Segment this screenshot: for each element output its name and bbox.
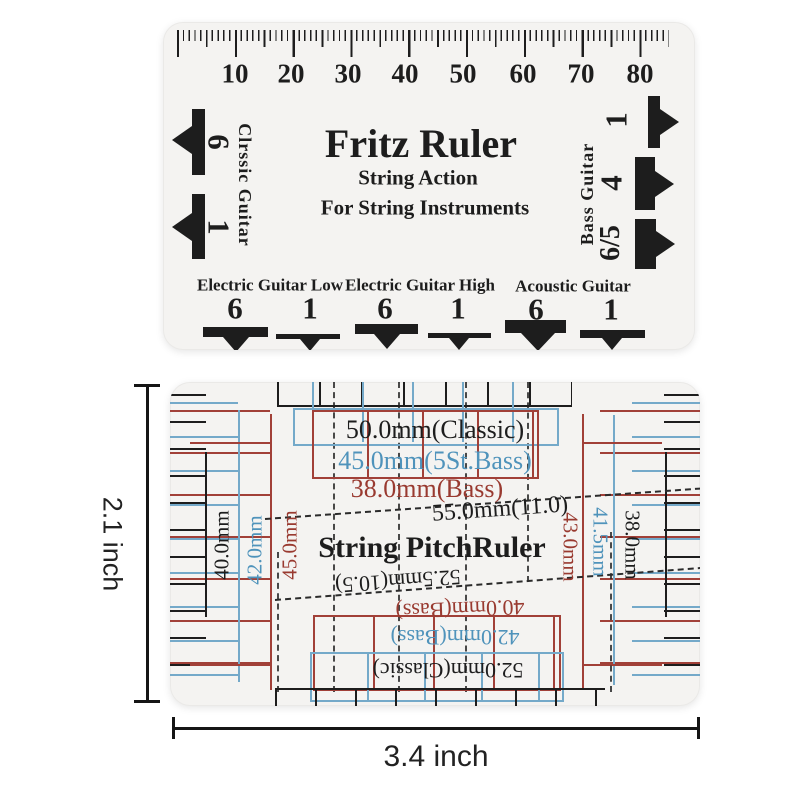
spacing-label-42-bass: 42.0mm(Bass) (391, 626, 520, 648)
scale-number: 30 (335, 61, 362, 88)
bass-string-number: 1 (601, 112, 632, 128)
guide-seg-red (190, 442, 270, 444)
marker-bar (203, 327, 268, 337)
bass-marker-arrow-1-icon (660, 109, 679, 135)
spacing-label-5st-bass: 45.0mm(5St.Bass) (338, 448, 532, 474)
marker-arrow-icon (449, 338, 469, 350)
bass-marker-arrow-6-5-icon (656, 231, 675, 257)
marker-arrow-icon (374, 334, 400, 349)
bass-marker-bar-1 (648, 96, 660, 148)
classic-marker-arrow-6-icon (172, 126, 192, 154)
pitch-ruler-card: 50.0mm(Classic) 45.0mm(5St.Bass) 38.0mm(… (170, 382, 700, 706)
guide-line (205, 452, 207, 617)
guide-line-blue (613, 415, 615, 685)
scale-number: 10 (222, 61, 249, 88)
ruler-subtitle-2: For String Instruments (321, 198, 529, 219)
guide-line-blue (238, 410, 240, 682)
marker-bar (580, 330, 645, 338)
dimension-cap (697, 717, 700, 739)
dimension-cap (172, 717, 175, 739)
marker-arrow-icon (602, 338, 622, 350)
guide-seg-red (190, 664, 270, 666)
comb-right-black (664, 394, 700, 686)
bottom-comb (275, 688, 605, 706)
guide-seg-red (582, 664, 662, 666)
right-label-43: 43.0mm (560, 512, 581, 581)
string-number: 6 (377, 293, 393, 324)
scale-number: 80 (627, 61, 654, 88)
string-number: 1 (603, 294, 619, 325)
dimension-line-horizontal (173, 727, 700, 730)
scale-number: 40 (392, 61, 419, 88)
width-dimension-label: 3.4 inch (383, 742, 488, 772)
marker-bar (505, 320, 566, 333)
left-label-40: 40.0mm (212, 510, 233, 579)
fritz-ruler-card: 10 20 30 40 50 60 70 80 Fritz Ruler Stri… (163, 22, 695, 350)
marker-arrow-icon (521, 333, 555, 350)
height-dimension-label: 2.1 inch (99, 497, 126, 592)
dimension-cap (134, 384, 160, 387)
bass-marker-arrow-4-icon (655, 171, 674, 197)
ruler-ticks-major (177, 30, 669, 57)
ruler-subtitle-1: String Action (358, 168, 478, 189)
bass-marker-bar-4 (635, 157, 655, 210)
string-number: 6 (227, 293, 243, 324)
marker-bar (355, 324, 418, 334)
dimension-cap (134, 700, 160, 703)
bass-string-number: 6/5 (597, 225, 625, 261)
right-label-41-5: 41.5mm (590, 507, 611, 576)
pitch-ruler-title: String PitchRuler (318, 533, 545, 563)
scale-number: 60 (510, 61, 537, 88)
string-number: 1 (302, 293, 318, 324)
classic-string-number: 6 (204, 134, 235, 150)
product-photo: 10 20 30 40 50 60 70 80 Fritz Ruler Stri… (0, 0, 800, 800)
comb-left-black (170, 394, 206, 686)
ruler-title: Fritz Ruler (325, 124, 517, 164)
guide-line (665, 452, 667, 617)
classic-string-number: 1 (204, 219, 235, 235)
left-label-42: 42.0mm (245, 515, 266, 584)
guide-seg-red (582, 442, 662, 444)
guide-line-red (270, 414, 272, 690)
bass-guitar-label: Bass Guitar (578, 143, 596, 246)
spacing-label-52-classic: 52.0mm(Classic) (373, 659, 524, 681)
bass-marker-bar-6-5 (635, 219, 656, 269)
bass-string-number: 4 (596, 175, 627, 191)
spacing-label-40-bass: 40.0mm(Bass) (395, 596, 525, 622)
group-label: Electric Guitar High (345, 277, 495, 294)
classic-marker-arrow-1-icon (172, 213, 192, 241)
marker-arrow-icon (300, 339, 320, 350)
left-label-45: 45.0mm (280, 510, 301, 579)
marker-arrow-icon (223, 337, 249, 350)
group-label: Electric Guitar Low (197, 277, 343, 294)
dimension-line-vertical (146, 386, 149, 702)
classic-guitar-label: Clrssic Guitar (236, 123, 254, 247)
spacing-label-52-5: 52.5mm(10.5) (334, 566, 461, 597)
scale-number: 20 (278, 61, 305, 88)
spacing-label-classic: 50.0mm(Classic) (346, 417, 524, 443)
scale-number: 50 (450, 61, 477, 88)
scale-number: 70 (568, 61, 595, 88)
top-comb (277, 382, 572, 407)
string-number: 1 (450, 293, 466, 324)
right-label-38: 38.0mm (622, 510, 643, 579)
